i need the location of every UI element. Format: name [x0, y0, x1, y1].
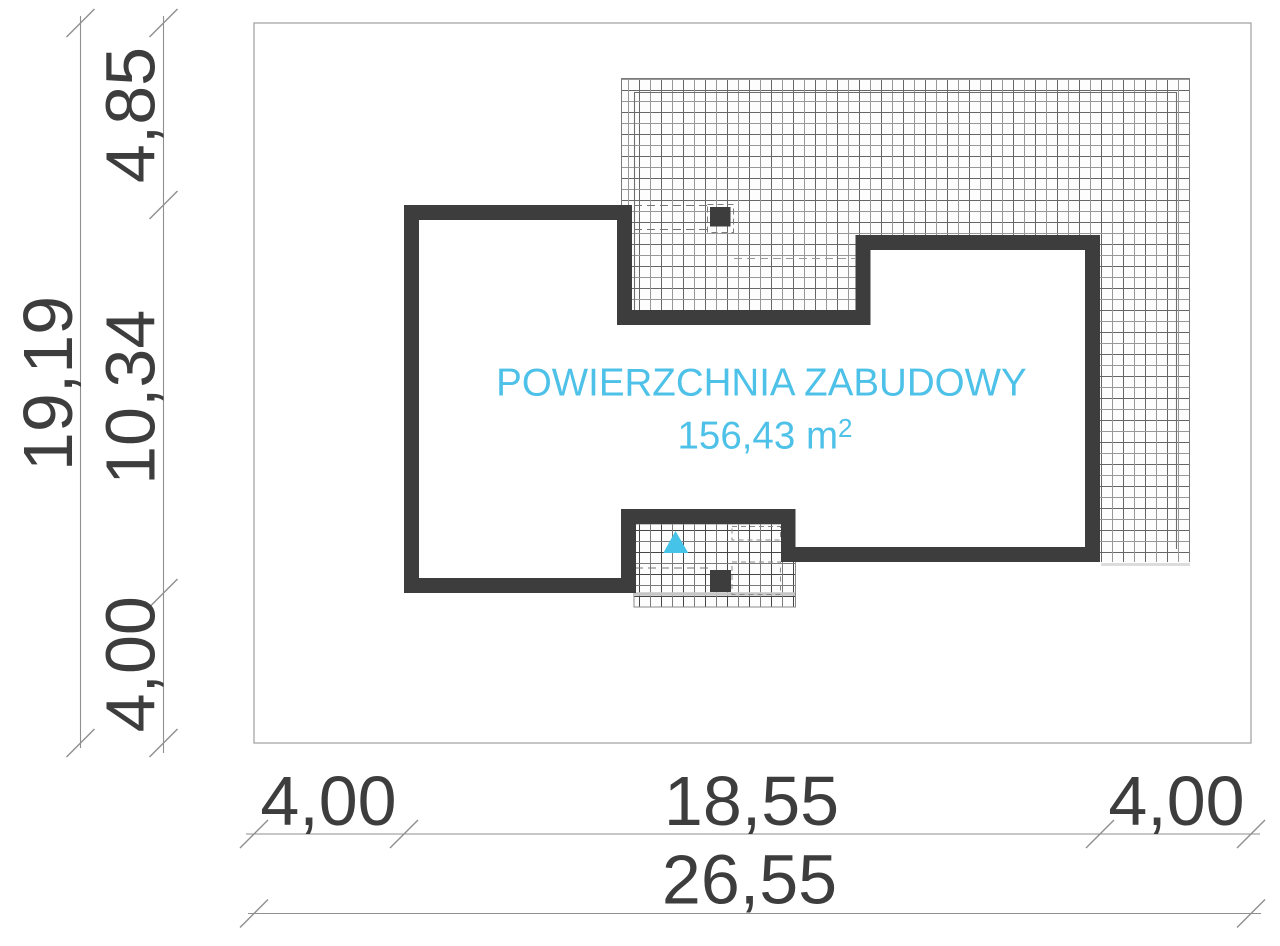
svg-text:19,19: 19,19	[9, 296, 87, 471]
svg-text:18,55: 18,55	[664, 762, 839, 840]
svg-text:4,85: 4,85	[92, 47, 170, 183]
svg-text:4,00: 4,00	[1108, 762, 1244, 840]
svg-text:POWIERZCHNIA ZABUDOWY: POWIERZCHNIA ZABUDOWY	[496, 362, 1026, 405]
svg-text:4,00: 4,00	[92, 596, 170, 732]
svg-text:4,00: 4,00	[260, 762, 396, 840]
svg-text:156,43 m2: 156,43 m2	[678, 413, 853, 458]
svg-text:26,55: 26,55	[662, 841, 837, 919]
svg-text:10,34: 10,34	[92, 310, 170, 485]
